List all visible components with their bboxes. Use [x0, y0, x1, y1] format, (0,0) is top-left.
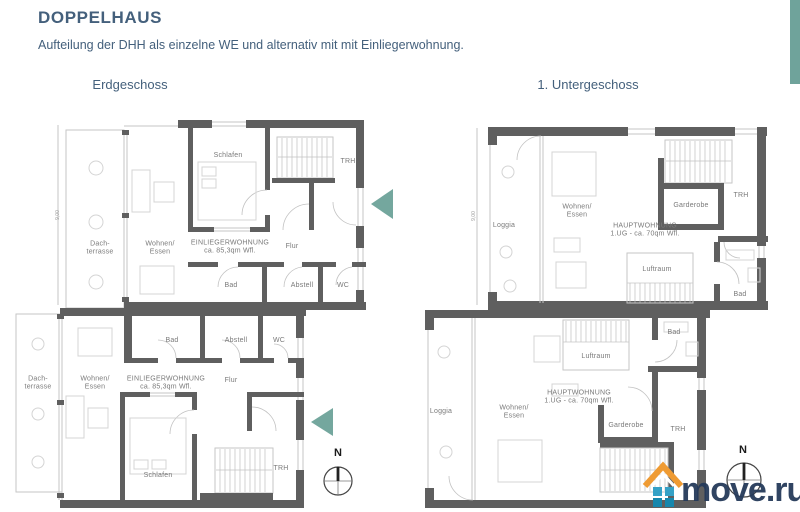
- room-label-wohnen-essen: Wohnen/ Essen: [145, 241, 174, 258]
- eg-top-unit-drawing: [58, 120, 366, 310]
- room-label-luftraum: Luftraum: [642, 266, 671, 274]
- room-label-loggia: Loggia: [493, 222, 515, 230]
- room-label-abstell: Abstell: [225, 337, 247, 345]
- ug-top-unit-drawing: [477, 127, 768, 310]
- room-label-dachterrasse: Dach- terrasse: [87, 241, 114, 258]
- room-label-schlafen: Schlafen: [144, 472, 173, 480]
- direction-arrow-icon: [371, 189, 393, 219]
- room-label-bad: Bad: [224, 282, 237, 290]
- unit-label-einliegerwohnung: EINLIEGERWOHNUNG ca. 85,3qm Wfl.: [127, 376, 205, 393]
- unit-label-hauptwohnung: HAUPTWOHNUNG 1.UG - ca. 70qm Wfl.: [610, 223, 679, 240]
- room-label-garderobe: Garderobe: [673, 202, 708, 210]
- room-label-bad: Bad: [165, 337, 178, 345]
- dimension-label: 9,00: [471, 211, 477, 221]
- room-label-luftraum: Luftraum: [581, 353, 610, 361]
- room-label-wohnen-essen: Wohnen/ Essen: [80, 376, 109, 393]
- direction-arrow-icon: [311, 408, 333, 436]
- room-label-flur: Flur: [286, 243, 299, 251]
- compass-icon: [324, 467, 352, 495]
- room-label-flur: Flur: [225, 377, 238, 385]
- move-ru-watermark: move.ru: [681, 471, 800, 510]
- room-label-abstell: Abstell: [291, 282, 313, 290]
- unit-label-einliegerwohnung: EINLIEGERWOHNUNG ca. 85,3qm Wfl.: [191, 240, 269, 257]
- room-label-wohnen-essen: Wohnen/ Essen: [499, 405, 528, 422]
- room-label-wc: WC: [337, 282, 349, 290]
- room-label-trh: TRH: [734, 192, 749, 200]
- compass-north-label: N: [334, 447, 342, 459]
- compass-north-label: N: [739, 444, 747, 456]
- room-label-bad: Bad: [667, 329, 680, 337]
- room-label-bad: Bad: [733, 291, 746, 299]
- room-label-wohnen-essen: Wohnen/ Essen: [562, 204, 591, 221]
- floor-plan-canvas: [0, 0, 800, 512]
- room-label-dachterrasse: Dach- terrasse: [25, 376, 52, 393]
- room-label-loggia: Loggia: [430, 408, 452, 416]
- dimension-label: 9,00: [55, 210, 61, 220]
- room-label-trh: TRH: [671, 426, 686, 434]
- unit-label-hauptwohnung: HAUPTWOHNUNG 1.UG - ca. 70qm Wfl.: [544, 390, 613, 407]
- room-label-trh: TRH: [341, 158, 356, 166]
- floorplan-page: DOPPELHAUS Aufteilung der DHH als einzel…: [0, 0, 800, 512]
- room-label-wc: WC: [273, 337, 285, 345]
- room-label-garderobe: Garderobe: [608, 422, 643, 430]
- room-label-trh: TRH: [274, 465, 289, 473]
- room-label-schlafen: Schlafen: [214, 152, 243, 160]
